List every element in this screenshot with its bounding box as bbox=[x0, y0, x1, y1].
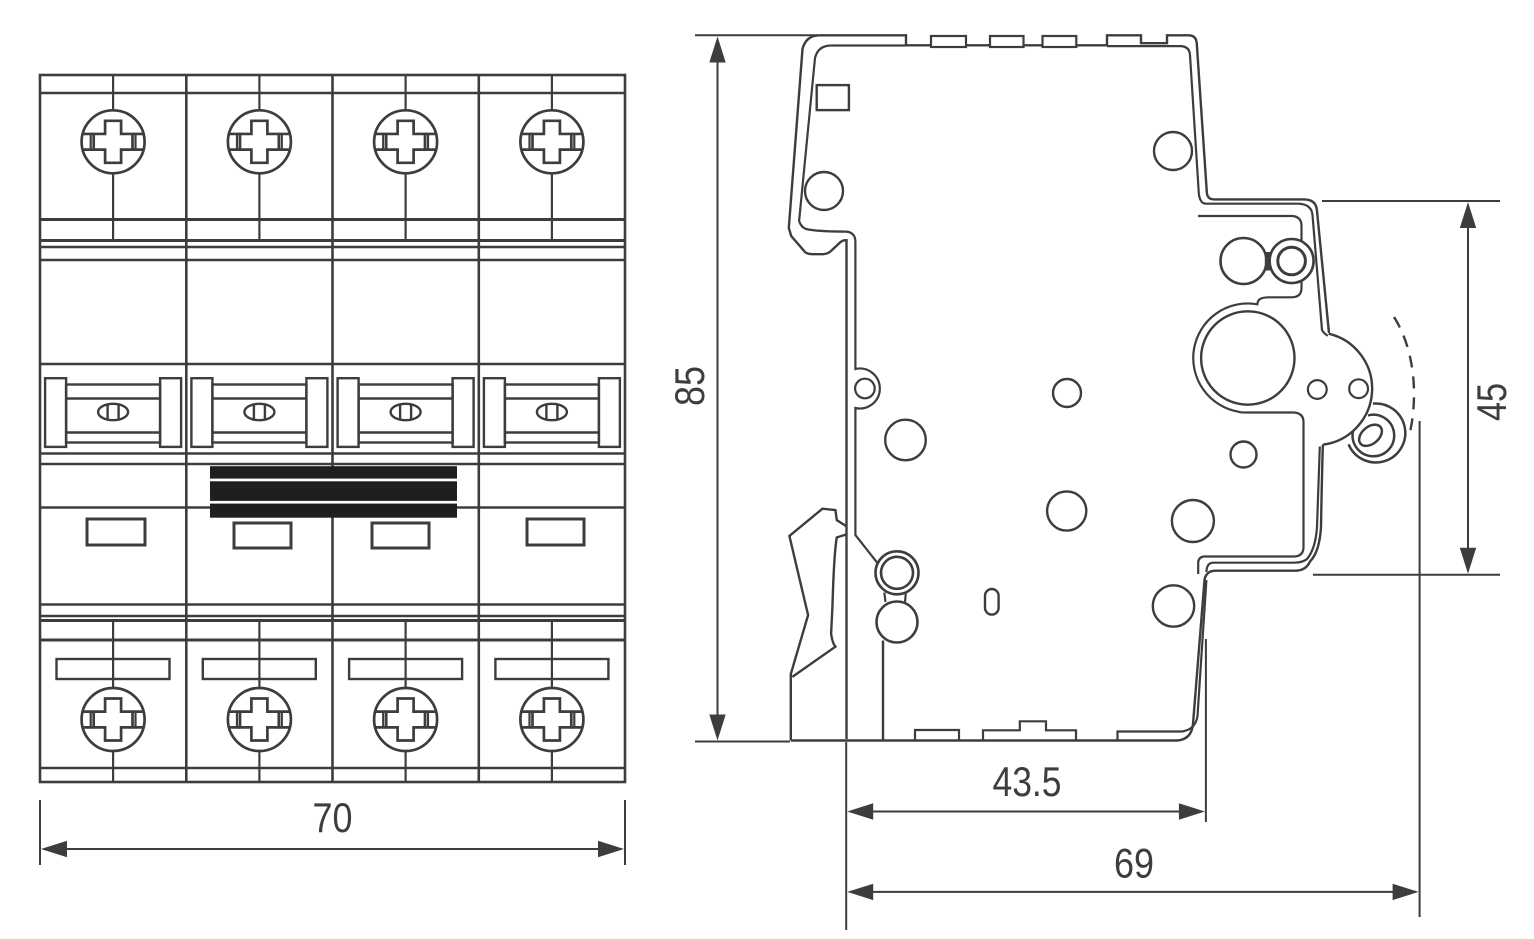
svg-text:45: 45 bbox=[1468, 383, 1515, 421]
svg-text:69: 69 bbox=[1114, 840, 1154, 887]
svg-text:43.5: 43.5 bbox=[993, 758, 1062, 805]
svg-text:85: 85 bbox=[666, 366, 713, 406]
svg-text:70: 70 bbox=[313, 794, 353, 841]
